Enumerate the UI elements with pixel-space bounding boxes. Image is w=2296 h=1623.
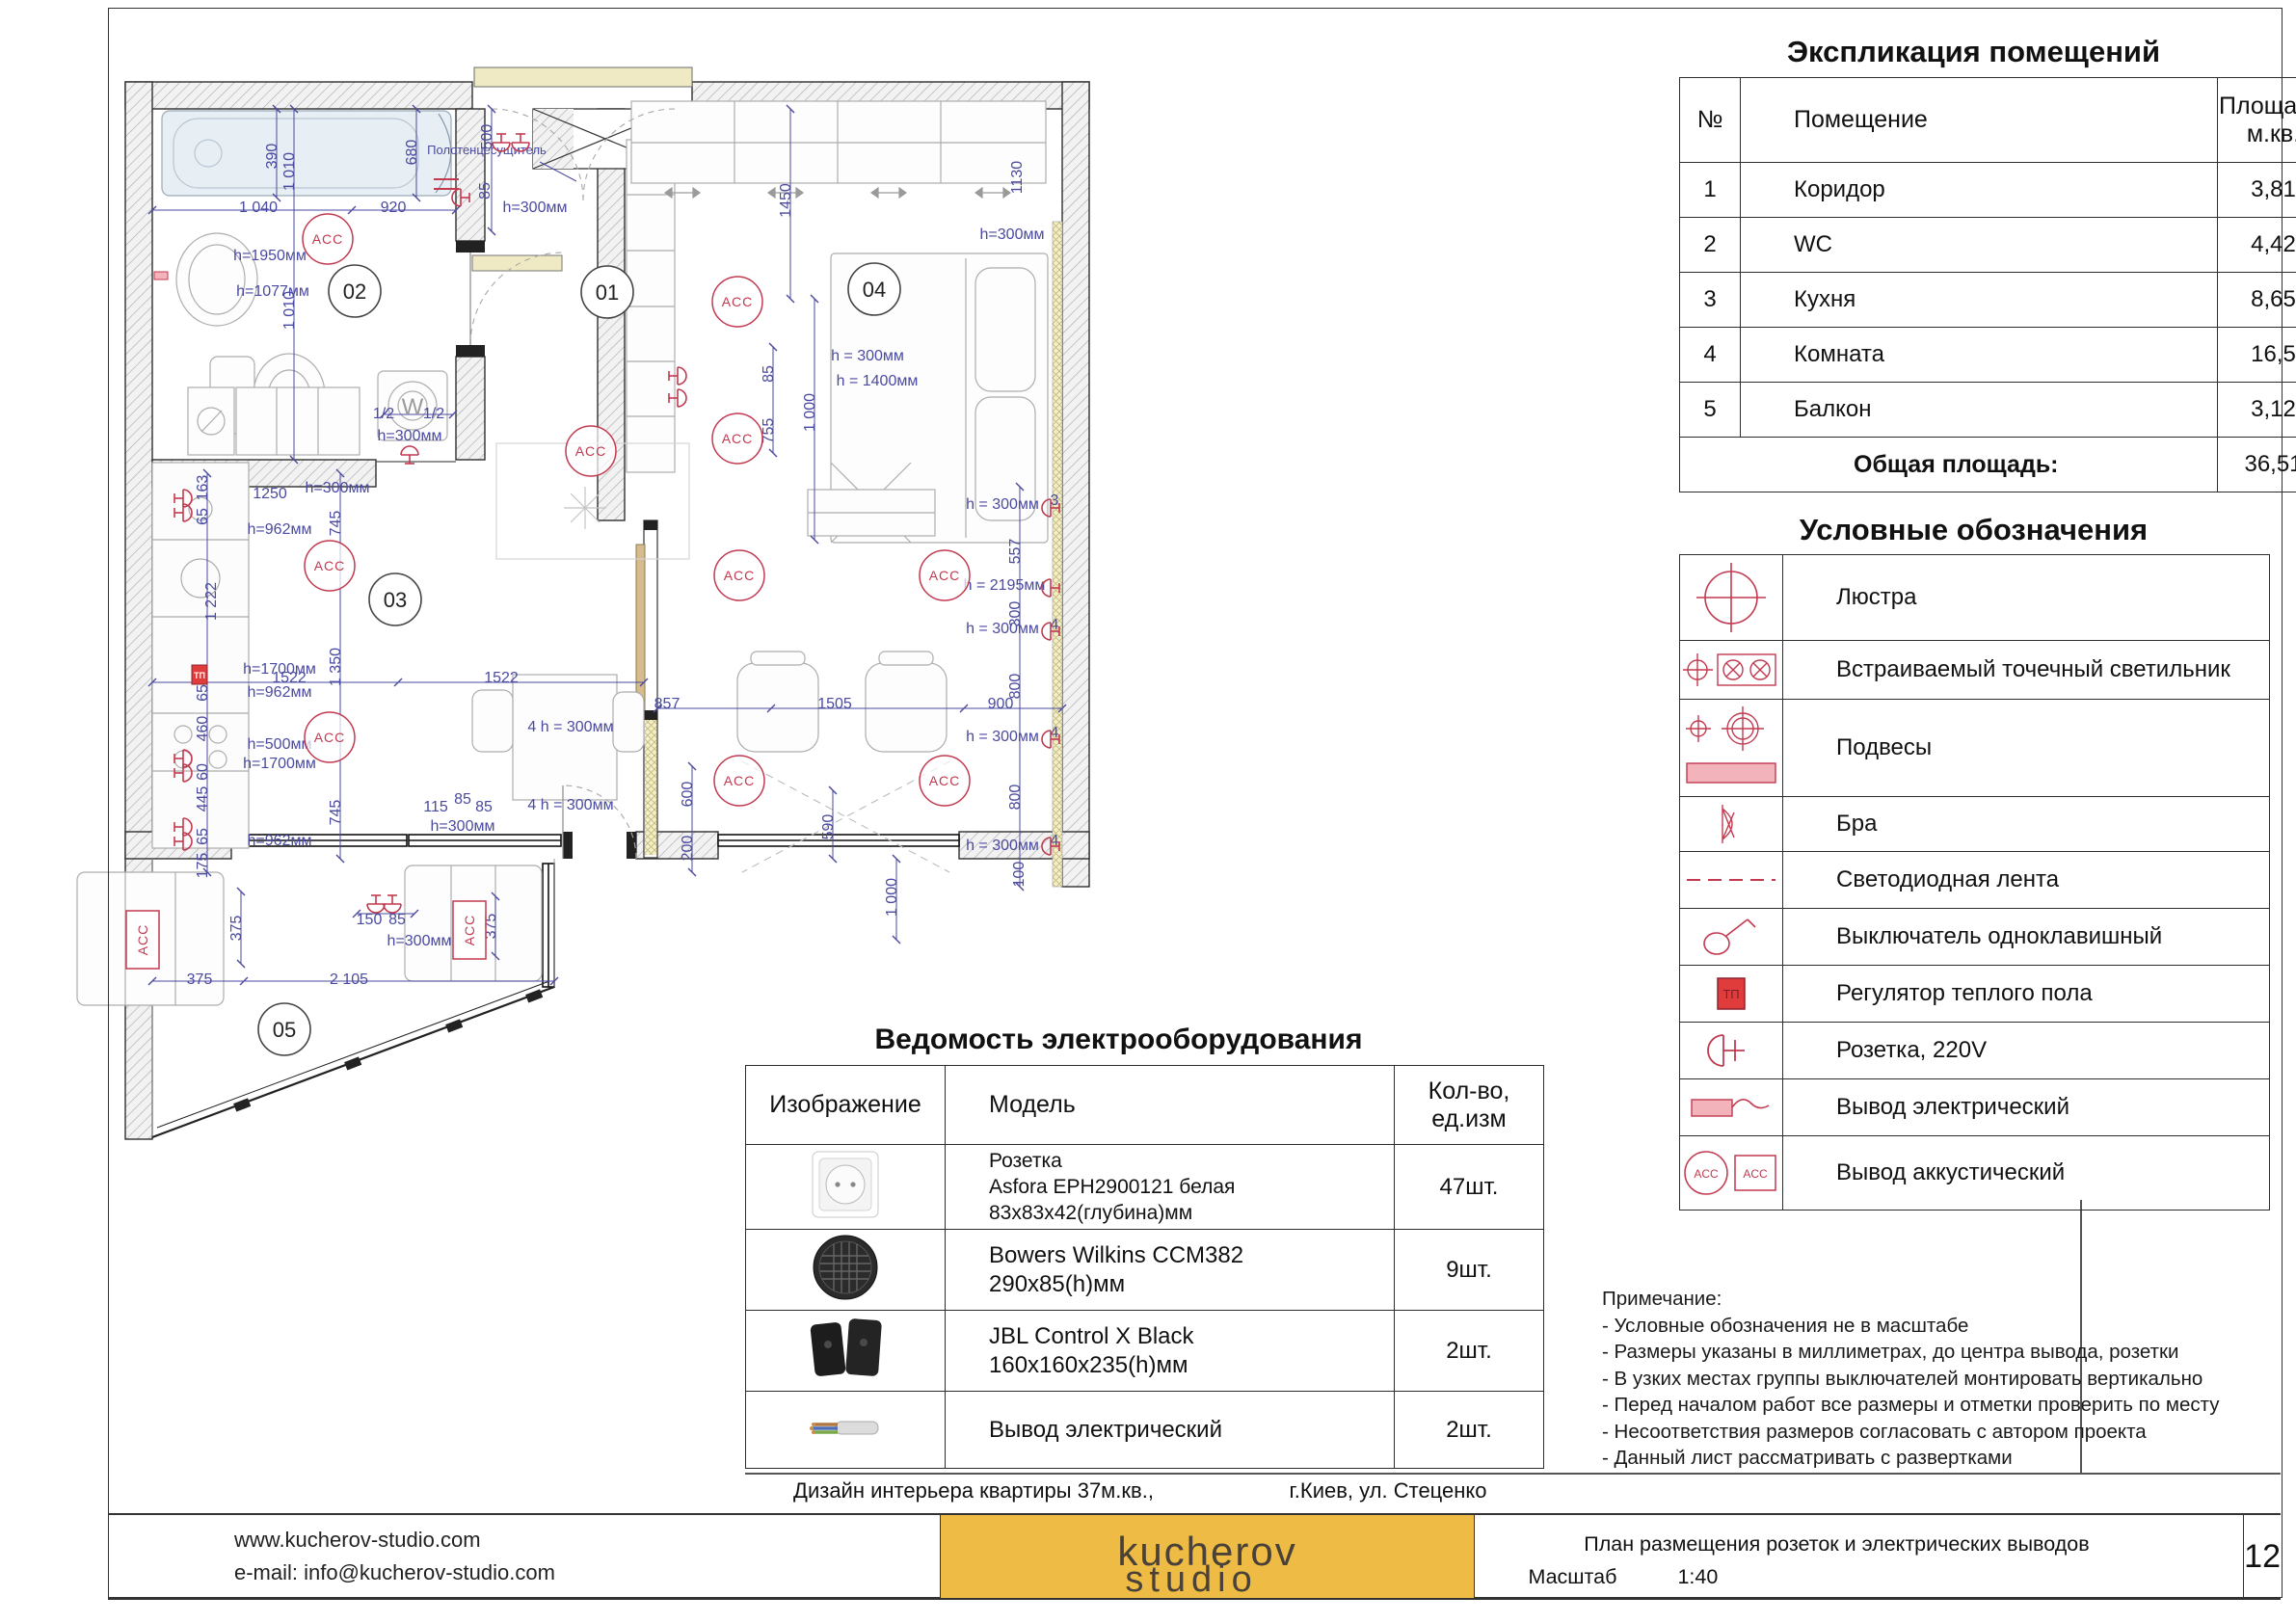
- qty: 47шт.: [1395, 1145, 1544, 1230]
- caption-address: г.Киев, ул. Стеценко: [1263, 1478, 1513, 1503]
- acoustic-outlet-icon: ACC ACC: [1680, 1136, 1783, 1210]
- bw-speaker-icon: [746, 1230, 946, 1311]
- legend-label: Бра: [1783, 811, 1877, 838]
- room-num: 3: [1680, 273, 1741, 328]
- col-image: Изображение: [746, 1066, 946, 1145]
- note-line: - Размеры указаны в миллиметрах, до цент…: [1602, 1339, 2220, 1366]
- table-row: Розетка Asfora EPH2900121 белая 83х83х42…: [746, 1145, 1544, 1230]
- room-area: 8,65: [2218, 273, 2296, 328]
- legend-row: Люстра: [1680, 555, 2269, 641]
- note-line: - Условные обозначения не в масштабе: [1602, 1313, 2220, 1340]
- room-name: Балкон: [1741, 383, 2218, 438]
- qty: 2шт.: [1395, 1311, 1544, 1392]
- cable-icon: [746, 1392, 946, 1469]
- legend-table: Люстра Встраиваемый точечный светильник: [1679, 554, 2270, 1211]
- sheet-title-cell: План размещения розеток и электрических …: [1475, 1515, 2244, 1598]
- legend-label: Вывод электрический: [1783, 1094, 2069, 1121]
- legend-row: ТП Регулятор теплого пола: [1680, 966, 2269, 1023]
- pendant-icon: [1680, 700, 1783, 796]
- room-area: 3,12: [2218, 383, 2296, 438]
- qty: 2шт.: [1395, 1392, 1544, 1469]
- table-row: 2 WC 4,42: [1680, 218, 2296, 273]
- room-area: 4,42: [2218, 218, 2296, 273]
- note-line: - В узких местах группы выключателей мон…: [1602, 1366, 2220, 1393]
- note-line: - Данный лист рассматривать с разверткам…: [1602, 1445, 2220, 1472]
- qty: 9шт.: [1395, 1230, 1544, 1311]
- title-block: www.kucherov-studio.com e-mail: info@kuc…: [108, 1513, 2281, 1600]
- table-row: 5 Балкон 3,12: [1680, 383, 2296, 438]
- room-num: 1: [1680, 163, 1741, 218]
- chandelier-icon: [1680, 555, 1783, 640]
- model-line: Розетка: [989, 1148, 1393, 1174]
- model-line: 83х83х42(глубина)мм: [989, 1200, 1393, 1226]
- model-line: Bowers Wilkins CCM382: [989, 1241, 1393, 1270]
- legend-label: Встраиваемый точечный светильник: [1783, 656, 2230, 683]
- socket-photo-icon: [746, 1145, 946, 1230]
- model-line: Asfora EPH2900121 белая: [989, 1174, 1393, 1200]
- jbl-speaker-icon: [746, 1311, 946, 1392]
- studio-logo: kucherov studio: [941, 1515, 1476, 1598]
- legend-row: Светодиодная лента: [1680, 852, 2269, 909]
- page-number: 12: [2244, 1515, 2281, 1598]
- switch-icon: [1680, 909, 1783, 965]
- contact-cell: www.kucherov-studio.com e-mail: info@kuc…: [108, 1515, 941, 1598]
- total-row: Общая площадь: 36,51: [1680, 438, 2296, 492]
- legend-row: Встраиваемый точечный светильник: [1680, 641, 2269, 700]
- legend-label: Вывод аккустический: [1783, 1159, 2065, 1186]
- website: www.kucherov-studio.com: [234, 1528, 940, 1553]
- model-line: Вывод электрический: [989, 1416, 1393, 1445]
- legend-title: Условные обозначения: [1679, 513, 2268, 547]
- table-row: 3 Кухня 8,65: [1680, 273, 2296, 328]
- explication-title: Экспликация помещений: [1679, 35, 2268, 69]
- note-line: - Перед началом работ все размеры и отме…: [1602, 1392, 2220, 1419]
- socket-icon: [1680, 1023, 1783, 1078]
- legend-row: ACC ACC Вывод аккустический: [1680, 1136, 2269, 1210]
- legend-row: Подвесы: [1680, 700, 2269, 797]
- led-strip-icon: [1680, 852, 1783, 908]
- total-value: 36,51: [2218, 438, 2296, 492]
- note-line: - Несоответствия размеров согласовать с …: [1602, 1419, 2220, 1446]
- col-num: №: [1680, 78, 1741, 163]
- equipment-table: Изображение Модель Кол-во, ед.изм Розетк…: [745, 1065, 1544, 1469]
- electric-outlet-icon: [1680, 1079, 1783, 1135]
- drawing-sheet: 3901 0101 0101 040920680h=1950ммh=1077мм…: [0, 0, 2296, 1623]
- scale-label: Масштаб: [1528, 1565, 1616, 1589]
- table-row: JBL Control X Black 160х160х235(h)мм 2шт…: [746, 1311, 1544, 1392]
- model-line: 290х85(h)мм: [989, 1270, 1393, 1299]
- col-room: Помещение: [1741, 78, 2218, 163]
- col-model: Модель: [946, 1066, 1395, 1145]
- legend-label: Розетка, 220V: [1783, 1037, 1987, 1064]
- legend-row: Розетка, 220V: [1680, 1023, 2269, 1079]
- legend-label: Регулятор теплого пола: [1783, 980, 2093, 1007]
- col-qty: Кол-во, ед.изм: [1395, 1066, 1544, 1145]
- legend-label: Выключатель одноклавишный: [1783, 923, 2162, 950]
- floor-heating-icon: ТП: [1680, 966, 1783, 1022]
- equipment-title: Ведомость электрооборудования: [745, 1024, 1492, 1056]
- room-name: Комната: [1741, 328, 2218, 383]
- notes-block: Примечание: - Условные обозначения не в …: [1602, 1286, 2220, 1472]
- legend-row: Бра: [1680, 797, 2269, 852]
- scale-value: 1:40: [1677, 1565, 1718, 1589]
- svg-text:ACC: ACC: [1743, 1167, 1768, 1181]
- table-row: 4 Комната 16,5: [1680, 328, 2296, 383]
- divider: [745, 1473, 2281, 1475]
- notes-title: Примечание:: [1602, 1286, 2220, 1313]
- total-label: Общая площадь:: [1680, 438, 2218, 492]
- model-line: 160х160х235(h)мм: [989, 1351, 1393, 1380]
- email: e-mail: info@kucherov-studio.com: [234, 1560, 940, 1585]
- logo-text: studio: [1125, 1559, 1257, 1601]
- explication-table: № Помещение Площадь, м.кв. 1 Коридор 3,8…: [1679, 77, 2296, 492]
- room-area: 3,81: [2218, 163, 2296, 218]
- room-num: 5: [1680, 383, 1741, 438]
- legend-label: Светодиодная лента: [1783, 866, 2059, 893]
- room-num: 4: [1680, 328, 1741, 383]
- room-name: Кухня: [1741, 273, 2218, 328]
- room-name: Коридор: [1741, 163, 2218, 218]
- sconce-icon: [1680, 797, 1783, 851]
- model-line: JBL Control X Black: [989, 1322, 1393, 1351]
- table-row: Bowers Wilkins CCM382 290х85(h)мм 9шт.: [746, 1230, 1544, 1311]
- table-row: Вывод электрический 2шт.: [746, 1392, 1544, 1469]
- legend-label: Подвесы: [1783, 734, 1932, 761]
- sheet-title: План размещения розеток и электрических …: [1528, 1532, 2145, 1556]
- legend-row: Вывод электрический: [1680, 1079, 2269, 1136]
- room-num: 2: [1680, 218, 1741, 273]
- legend-row: Выключатель одноклавишный: [1680, 909, 2269, 966]
- svg-text:ТП: ТП: [1722, 987, 1739, 1001]
- room-name: WC: [1741, 218, 2218, 273]
- caption-project: Дизайн интерьера квартиры 37м.кв.,: [752, 1478, 1195, 1503]
- room-area: 16,5: [2218, 328, 2296, 383]
- legend-label: Люстра: [1783, 584, 1916, 611]
- svg-text:ACC: ACC: [1694, 1167, 1719, 1181]
- recessed-spot-icon: [1680, 641, 1783, 699]
- table-row: 1 Коридор 3,81: [1680, 163, 2296, 218]
- col-area: Площадь, м.кв.: [2218, 78, 2296, 163]
